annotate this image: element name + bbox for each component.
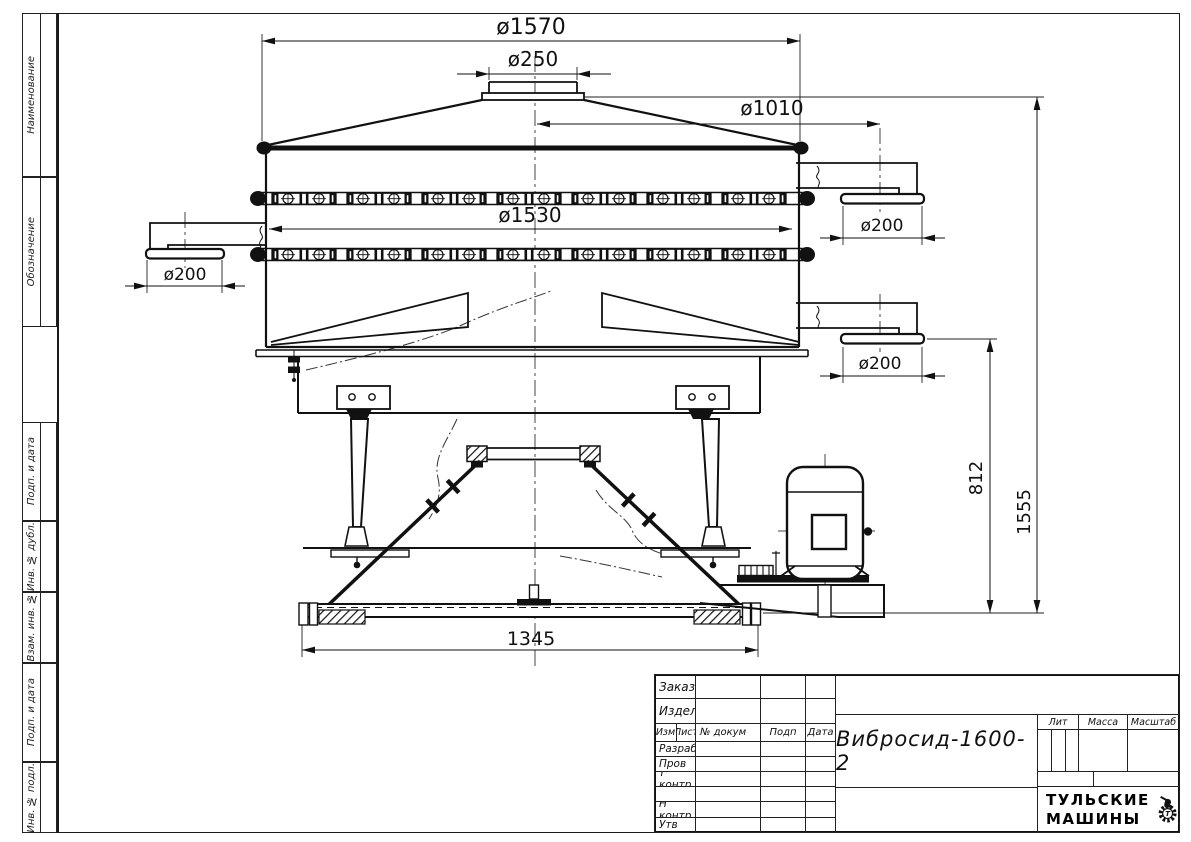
margin-box-sign-date-1: Подп. и дата <box>22 422 57 521</box>
tb-product-sign <box>760 698 806 724</box>
gear-emblem-icon: Т <box>1156 788 1179 832</box>
dim-right-lower-outlet: ø200 <box>859 354 902 374</box>
tb-row-checked: Пров <box>654 756 696 772</box>
tb-row-approved: Утв <box>654 817 696 833</box>
tb-lit-subdivider <box>1065 730 1066 771</box>
tb-sheet-cell <box>1037 771 1094 787</box>
tb-row-blank-sign <box>760 786 806 802</box>
tb-row-approved-doc <box>695 817 761 833</box>
dim-left-outlet: ø200 <box>164 265 207 285</box>
tb-row-checked-sign <box>760 756 806 772</box>
tb-row-tcontrol-sign <box>760 771 806 787</box>
tb-document-title: Вибросид-1600-2 <box>835 714 1038 788</box>
dim-inlet-diameter: ø250 <box>508 47 558 71</box>
body-rim <box>257 142 809 155</box>
margin-label-podp-data-1: Подп. и дата <box>26 437 37 505</box>
margin-box-sign-date-2: Подп. и дата <box>22 663 57 762</box>
margin-box-vzam-inv: Взам. инв. № <box>22 592 57 663</box>
tb-row-blank <box>654 786 696 802</box>
dim-base-width: 1345 <box>507 628 555 650</box>
lid-and-inlet <box>263 82 802 146</box>
margin-label-podp-data-2: Подп. и дата <box>26 678 37 746</box>
tb-row-tcontrol-doc <box>695 771 761 787</box>
tb-product-label: Изделие <box>654 698 696 724</box>
tb-row-ncontrol: Н контр <box>654 801 696 818</box>
margin-label-naimenovanie: Наименование <box>26 56 37 134</box>
margin-label-inv-dubl: Инв. № дубл. <box>26 522 37 591</box>
brand-text: ТУЛЬСКИЕ МАШИНЫ <box>1046 791 1150 829</box>
tb-order-date <box>805 674 836 699</box>
tb-mass-label: Масса <box>1078 714 1128 730</box>
tb-product-value <box>695 698 761 724</box>
margin-box-name: Наименование <box>22 13 57 177</box>
clamp-band-lower <box>250 247 815 262</box>
margin-label-oboznachenie: Обозначение <box>26 217 37 286</box>
margin-label-vzam-inv: Взам. инв. № <box>26 593 37 662</box>
tb-row-developed-sign <box>760 741 806 757</box>
tb-col-doc: № докум <box>695 723 761 742</box>
tb-row-ncontrol-date <box>805 801 836 818</box>
tb-designation-cell <box>835 674 1180 715</box>
tb-row-blank-date <box>805 786 836 802</box>
margin-box-inv-dubl: Инв. № дубл. <box>22 521 57 592</box>
tb-lit-label: Лит <box>1037 714 1079 730</box>
tb-row-ncontrol-doc <box>695 801 761 818</box>
tb-order-label: Заказ <box>654 674 696 699</box>
margin-box-divider <box>40 664 41 761</box>
tb-row-tcontrol: Т контр <box>654 771 696 787</box>
margin-box-divider <box>40 763 41 832</box>
dim-body-diameter: ø1530 <box>498 203 561 227</box>
drawing-sheet: ø1570 ø250 ø1010 ø1530 ø200 ø200 ø200 13… <box>0 0 1191 842</box>
base-housing <box>288 350 760 419</box>
margin-box-inv-podl: Инв. № подл. <box>22 762 57 833</box>
tb-mass-value <box>1078 729 1128 772</box>
tb-row-developed-doc <box>695 741 761 757</box>
brand-line-2: МАШИНЫ <box>1046 810 1150 829</box>
tb-row-developed-date <box>805 741 836 757</box>
margin-box-divider <box>40 178 41 326</box>
tb-row-checked-doc <box>695 756 761 772</box>
tb-row-approved-sign <box>760 817 806 833</box>
tb-sheets-cell <box>1093 771 1180 787</box>
tb-order-sign <box>760 674 806 699</box>
support-legs <box>303 419 751 568</box>
margin-box-divider <box>40 423 41 520</box>
right-lower-outlet <box>796 303 924 344</box>
margin-label-inv-podl: Инв. № подл. <box>26 763 37 833</box>
margin-box-divider <box>40 593 41 662</box>
dim-top-diameter: ø1570 <box>496 15 565 40</box>
right-upper-outlet <box>796 163 924 204</box>
dim-outlet-circle-diameter: ø1010 <box>740 96 803 120</box>
tb-col-date: Дата <box>805 723 836 742</box>
dimension-labels: ø1570 ø250 ø1010 ø1530 ø200 ø200 ø200 13… <box>164 15 1035 650</box>
tb-row-developed: Разраб <box>654 741 696 757</box>
dim-total-height: 1555 <box>1014 489 1035 535</box>
tb-row-approved-date <box>805 817 836 833</box>
tb-row-ncontrol-sign <box>760 801 806 818</box>
tb-col-sign: Подп <box>760 723 806 742</box>
extension-lines <box>147 34 1044 657</box>
dim-outlet-height: 812 <box>966 461 987 495</box>
left-outlet <box>146 223 266 259</box>
tb-lit-subdivider <box>1051 730 1052 771</box>
tb-lit-value <box>1037 729 1079 772</box>
base-plate <box>299 585 761 625</box>
tb-col-list: Лист <box>676 723 696 742</box>
tb-scale-value <box>1127 729 1180 772</box>
brand-line-1: ТУЛЬСКИЕ <box>1046 791 1150 810</box>
tb-row-tcontrol-date <box>805 771 836 787</box>
tb-order-value <box>695 674 761 699</box>
tb-product-date <box>805 698 836 724</box>
margin-box-divider <box>40 522 41 591</box>
tb-scale-label: Масштаб <box>1127 714 1180 730</box>
tb-bottom-left-cell <box>835 787 1038 833</box>
tb-row-checked-date <box>805 756 836 772</box>
tb-company-logo: ТУЛЬСКИЕ МАШИНЫ Т <box>1037 786 1180 833</box>
dim-right-upper-outlet: ø200 <box>861 216 904 236</box>
margin-box-designation: Обозначение <box>22 177 57 327</box>
tb-col-izm: Изм <box>654 723 677 742</box>
margin-box-divider <box>40 14 41 176</box>
tb-row-blank-doc <box>695 786 761 802</box>
